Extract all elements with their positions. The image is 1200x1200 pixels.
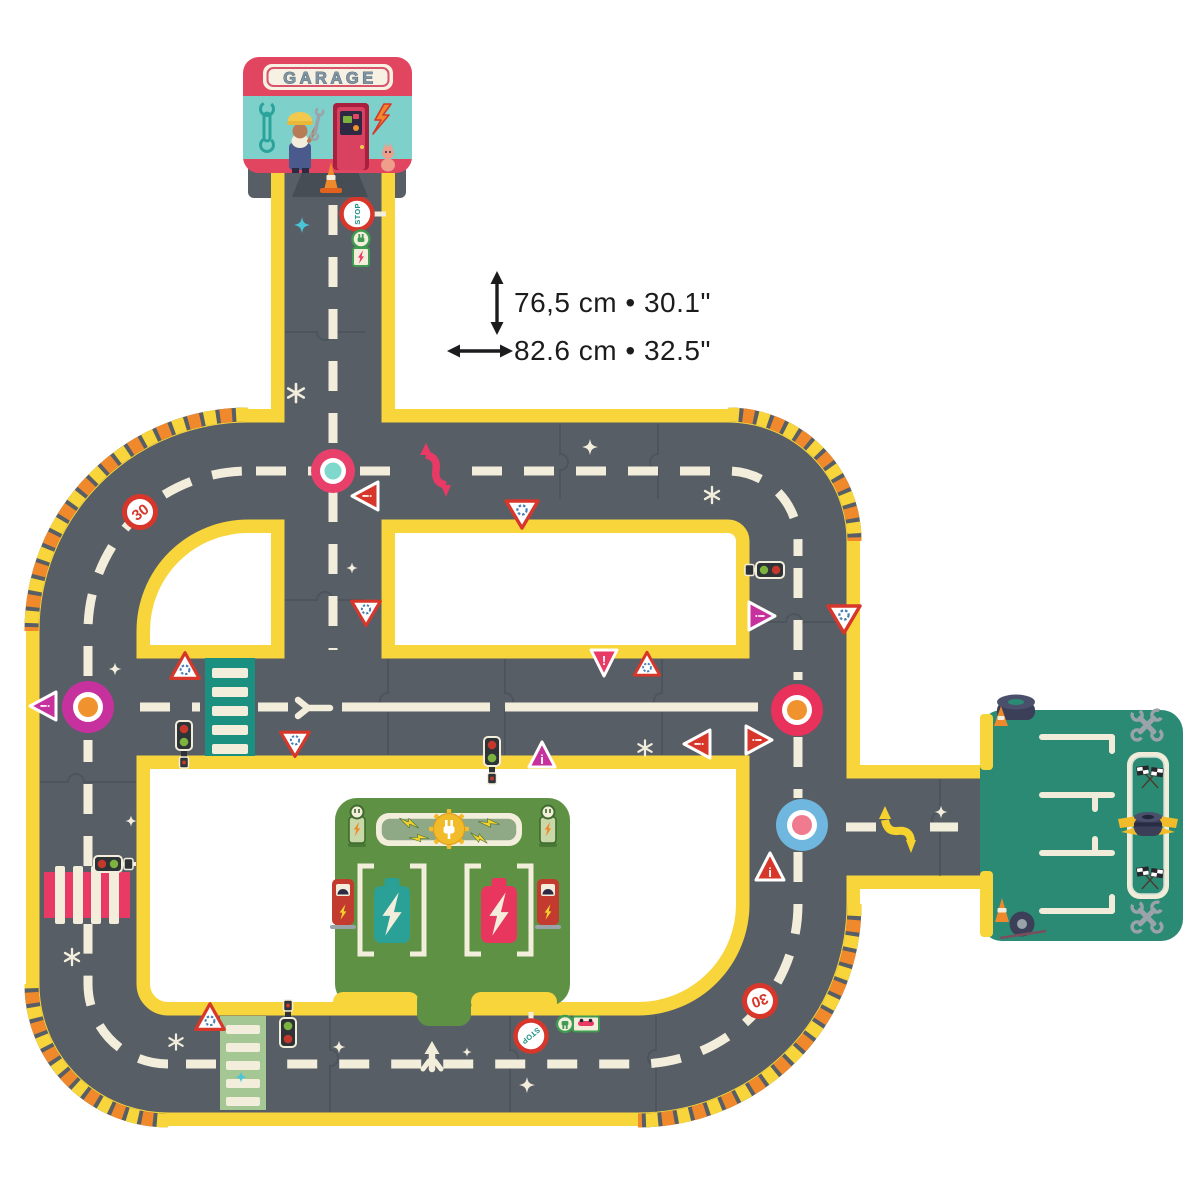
arrow-down-icon	[491, 322, 504, 335]
crosswalk-pink	[44, 866, 130, 924]
station-banner	[376, 809, 522, 849]
parking-lot	[980, 695, 1183, 942]
stop-sign	[342, 199, 373, 230]
garage-sign-text: GARAGE	[283, 70, 376, 88]
race-sign-plate	[1118, 752, 1178, 899]
plug-gear-emblem	[429, 809, 469, 849]
svg-text:!: !	[692, 742, 707, 746]
charge-pole-icon	[348, 806, 366, 848]
traffic-light	[484, 737, 500, 784]
charger-unit-icon	[535, 879, 561, 929]
dimension-annotations: 76,5 cm • 30.1" 82.6 cm • 32.5"	[447, 271, 711, 366]
svg-text:!: !	[750, 738, 765, 742]
width-dimension: 82.6 cm • 32.5"	[447, 335, 711, 366]
traffic-light-horizontal	[744, 562, 784, 578]
roundabout-marker	[776, 799, 828, 851]
svg-text:!: !	[602, 653, 606, 668]
traffic-light-horizontal	[94, 856, 136, 872]
svg-text:!: !	[753, 614, 768, 618]
battery-pink-icon	[481, 878, 517, 943]
height-dimension: 76,5 cm • 30.1"	[491, 271, 711, 335]
roundabout-marker	[62, 681, 114, 733]
svg-text:i: i	[540, 752, 544, 767]
arrow-right-icon	[500, 345, 513, 358]
charging-station	[330, 798, 570, 1026]
arrow-up-icon	[491, 271, 504, 284]
arrow-left-icon	[447, 345, 460, 358]
width-label: 82.6 cm • 32.5"	[514, 335, 711, 366]
road-map: STOP 30 76,5 cm • 30.1"	[0, 0, 1200, 1200]
charger-unit-icon	[330, 879, 356, 929]
roundabout-marker	[771, 684, 823, 736]
road-puzzle-product-image: STOP 30 76,5 cm • 30.1"	[0, 0, 1200, 1200]
ev-plug-badge	[557, 1016, 573, 1032]
garage-door	[333, 103, 369, 170]
svg-text:i: i	[768, 865, 772, 880]
height-label: 76,5 cm • 30.1"	[514, 287, 711, 318]
roundabout-marker	[311, 449, 355, 493]
garage-building: GARAGE	[243, 57, 412, 173]
crosswalk-teal	[205, 658, 255, 756]
ev-plug-badge	[353, 231, 370, 248]
svg-text:!: !	[38, 704, 53, 708]
crosswalk-green	[220, 1016, 266, 1110]
charge-pole-icon	[539, 806, 557, 848]
svg-text:!: !	[360, 494, 375, 498]
ev-bolt-badge	[353, 248, 369, 266]
battery-teal-icon	[374, 878, 410, 943]
ev-car-badge	[573, 1017, 599, 1032]
